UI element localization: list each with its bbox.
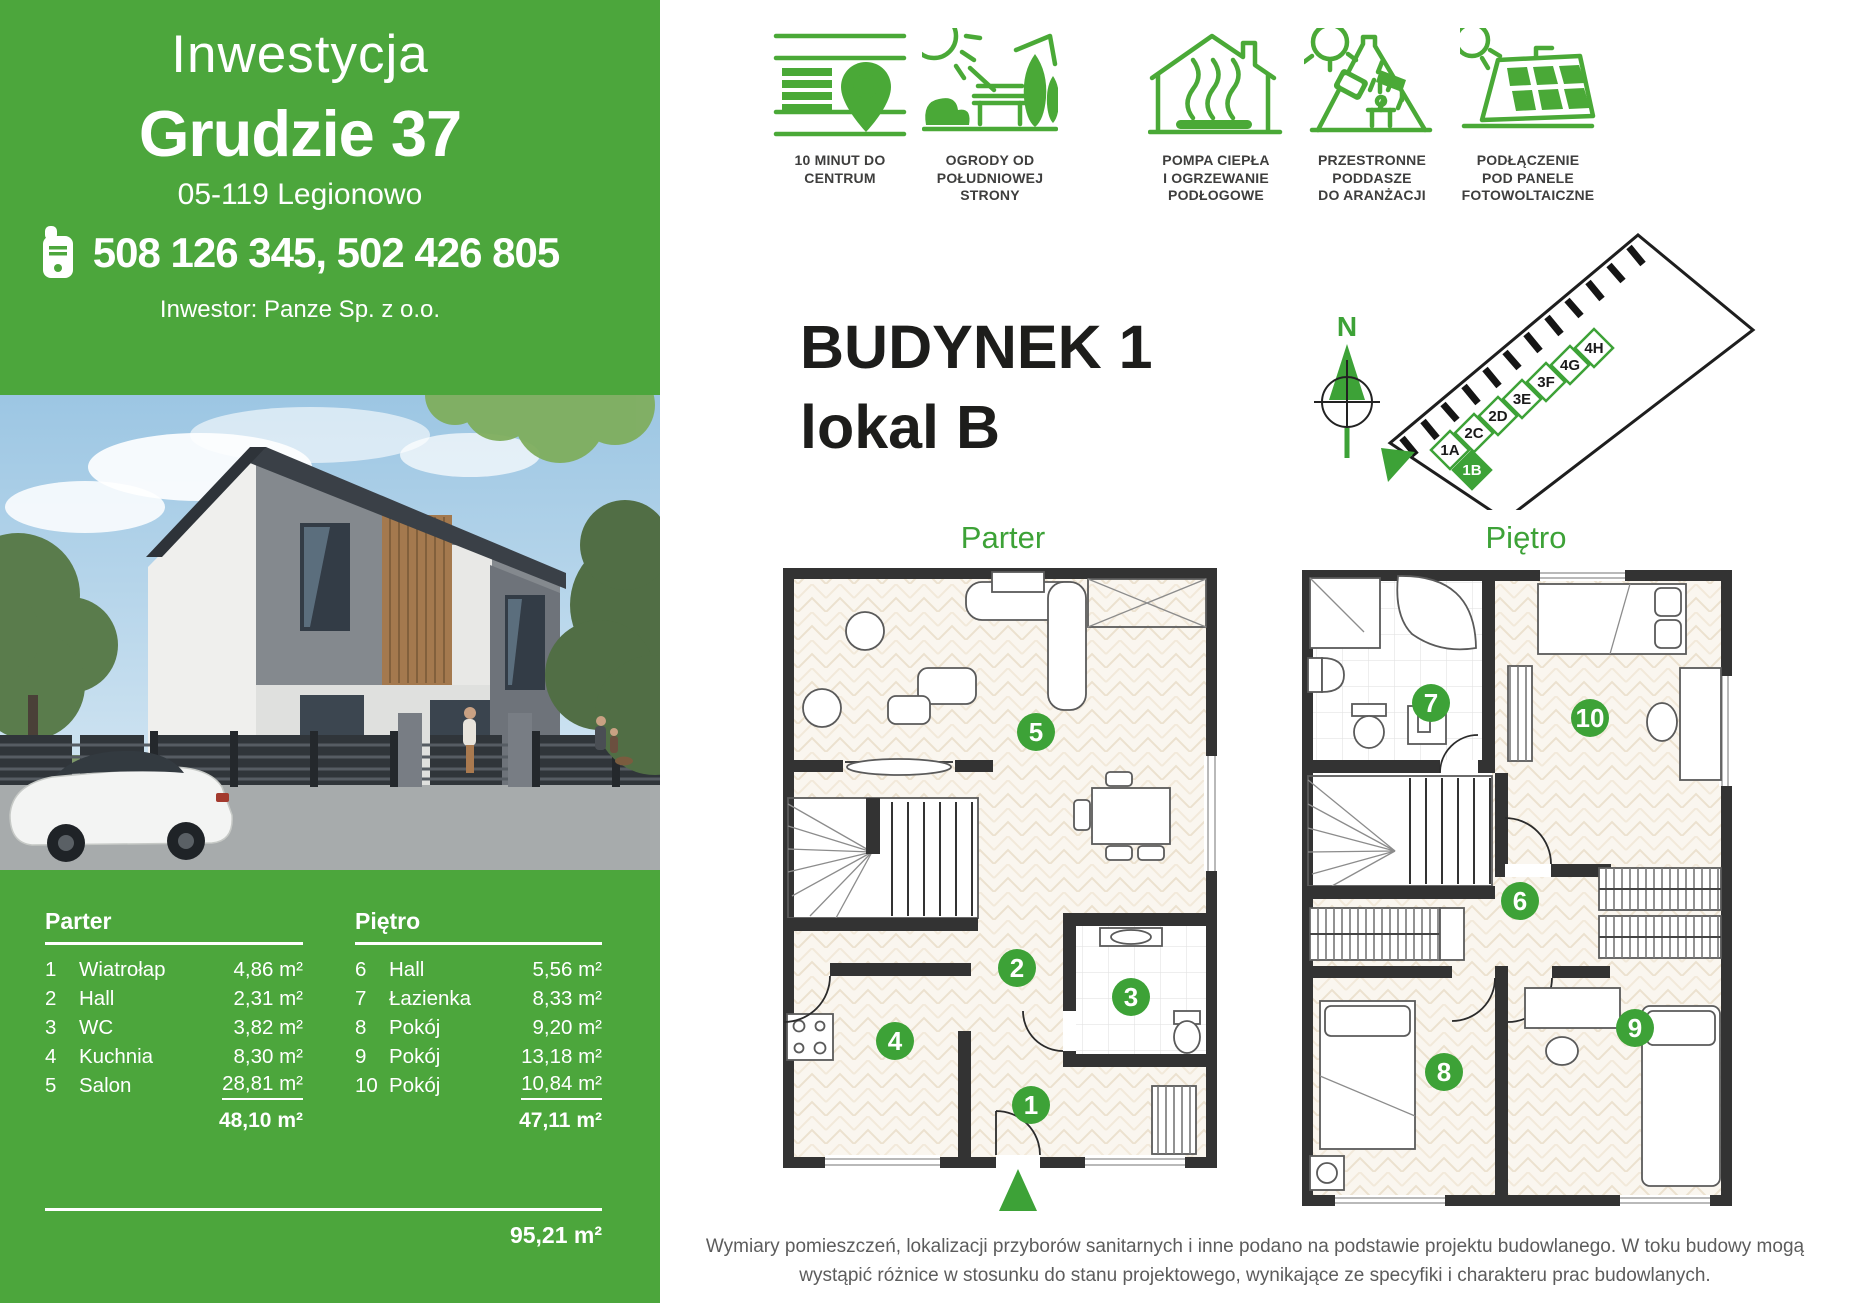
closet <box>1152 1086 1196 1154</box>
table-header-pietro: Piętro <box>355 908 602 935</box>
room-marker: 3 <box>1112 978 1150 1016</box>
table-header-parter: Parter <box>45 908 303 935</box>
wardrobe <box>1310 908 1464 960</box>
grand-total: 95,21 m² <box>302 1222 602 1249</box>
disclaimer: Wymiary pomieszczeń, lokalizacji przybor… <box>665 1232 1845 1290</box>
feature-label: PRZESTRONNE PODDASZE DO ARANŻACJI <box>1284 152 1460 205</box>
investor: Inwestor: Panze Sp. z o.o. <box>0 296 600 324</box>
svg-text:4: 4 <box>888 1026 903 1056</box>
room-no: 1 <box>45 958 79 982</box>
site-plan: 1A 2C 2D 3E 3F 4G <box>1360 210 1820 510</box>
floor-total: 47,11 m² <box>355 1109 602 1133</box>
table-row: 4 Kuchnia 8,30 m² <box>45 1042 303 1071</box>
house-render-illustration <box>0 395 660 870</box>
feature-label: PODŁĄCZENIE POD PANELE FOTOWOLTAICZNE <box>1440 152 1616 205</box>
floor-plan-parter: 5 2 3 4 1 <box>770 556 1230 1221</box>
table-row: 9 Pokój 13,18 m² <box>355 1042 602 1071</box>
address: 05-119 Legionowo <box>0 178 600 212</box>
svg-text:3F: 3F <box>1537 374 1555 391</box>
building-title: BUDYNEK 1 <box>800 312 1153 382</box>
svg-text:4H: 4H <box>1584 340 1603 357</box>
room-no: 4 <box>45 1045 79 1069</box>
room-area: 13,18 m² <box>521 1045 602 1069</box>
room-name: Hall <box>79 987 234 1011</box>
svg-text:2D: 2D <box>1488 408 1507 425</box>
svg-text:3: 3 <box>1124 982 1138 1012</box>
svg-text:9: 9 <box>1628 1013 1642 1043</box>
room-name: Wiatrołap <box>79 958 234 982</box>
compass-north-label: N <box>1337 311 1357 342</box>
room-name: Pokój <box>389 1045 521 1069</box>
floor-total: 48,10 m² <box>45 1109 303 1133</box>
svg-text:1: 1 <box>1024 1090 1038 1120</box>
svg-text:5: 5 <box>1029 717 1043 747</box>
unit-title: lokal B <box>800 392 1000 462</box>
svg-text:10: 10 <box>1576 703 1605 733</box>
room-area: 10,84 m² <box>521 1072 602 1100</box>
feature-gardens: OGRODY OD POŁUDNIOWEJ STRONY <box>902 28 1078 205</box>
room-marker: 2 <box>998 949 1036 987</box>
room-area: 28,81 m² <box>222 1072 303 1100</box>
feature-heat-pump: POMPA CIEPŁA I OGRZEWANIE PODŁOGOWE <box>1128 28 1304 205</box>
room-area: 4,86 m² <box>234 958 304 982</box>
room-area: 2,31 m² <box>234 987 304 1011</box>
entrance-triangle <box>999 1169 1037 1211</box>
phone-numbers: 508 126 345, 502 426 805 <box>93 229 559 277</box>
room-marker: 10 <box>1571 699 1609 737</box>
room-no: 5 <box>45 1074 79 1098</box>
table-row: 1 Wiatrołap 4,86 m² <box>45 955 303 984</box>
svg-text:6: 6 <box>1513 886 1527 916</box>
heat-pump-icon <box>1148 28 1284 140</box>
feature-solar: PODŁĄCZENIE POD PANELE FOTOWOLTAICZNE <box>1440 28 1616 205</box>
room-area: 3,82 m² <box>234 1016 304 1040</box>
room-marker: 1 <box>1012 1086 1050 1124</box>
site-marker-triangle <box>1381 448 1415 482</box>
divider <box>355 942 602 945</box>
svg-text:2: 2 <box>1010 953 1024 983</box>
map-pin-icon <box>772 28 908 140</box>
table-row: 2 Hall 2,31 m² <box>45 984 303 1013</box>
floor-plan-pietro: 7 10 6 8 9 <box>1290 556 1750 1236</box>
room-marker: 8 <box>1425 1053 1463 1091</box>
room-no: 8 <box>355 1016 389 1040</box>
phone-row: 508 126 345, 502 426 805 <box>0 226 600 280</box>
floor-label-parter: Parter <box>903 520 1103 556</box>
svg-text:1A: 1A <box>1440 442 1459 459</box>
room-no: 3 <box>45 1016 79 1040</box>
svg-text:2C: 2C <box>1464 425 1483 442</box>
feature-attic: PRZESTRONNE PODDASZE DO ARANŻACJI <box>1284 28 1460 205</box>
svg-text:7: 7 <box>1424 688 1438 718</box>
room-area: 8,33 m² <box>533 987 603 1011</box>
room-marker: 4 <box>876 1022 914 1060</box>
room-no: 6 <box>355 958 389 982</box>
room-area: 8,30 m² <box>234 1045 304 1069</box>
table-row: 6 Hall 5,56 m² <box>355 955 602 984</box>
solar-panel-icon <box>1460 28 1596 140</box>
room-marker: 5 <box>1017 713 1055 751</box>
room-name: Salon <box>79 1074 222 1098</box>
room-no: 2 <box>45 987 79 1011</box>
investment-title-bold: Grudzie 37 <box>0 96 600 171</box>
attic-icon <box>1304 28 1440 140</box>
disclaimer-line2: wystąpić różnice w stosunku do stanu pro… <box>665 1261 1845 1290</box>
room-name: Pokój <box>389 1016 533 1040</box>
room-area: 9,20 m² <box>533 1016 603 1040</box>
room-no: 9 <box>355 1045 389 1069</box>
table-row: 8 Pokój 9,20 m² <box>355 1013 602 1042</box>
table-row: 3 WC 3,82 m² <box>45 1013 303 1042</box>
svg-text:8: 8 <box>1437 1057 1451 1087</box>
svg-text:3E: 3E <box>1513 391 1531 408</box>
feature-label: OGRODY OD POŁUDNIOWEJ STRONY <box>902 152 1078 205</box>
table-row: 10 Pokój 10,84 m² <box>355 1071 602 1100</box>
svg-text:4G: 4G <box>1560 357 1580 374</box>
room-no: 10 <box>355 1074 389 1098</box>
flyer-page: Inwestycja Grudzie 37 05-119 Legionowo 5… <box>0 0 1850 1303</box>
area-table-pietro: Piętro 6 Hall 5,56 m² 7 Łazienka 8,33 m²… <box>355 908 602 1133</box>
table-row: 5 Salon 28,81 m² <box>45 1071 303 1100</box>
room-marker: 6 <box>1501 882 1539 920</box>
floor-label-pietro: Piętro <box>1426 520 1626 556</box>
investment-title-light: Inwestycja <box>0 24 600 85</box>
grand-total-divider <box>45 1208 602 1211</box>
svg-text:1B: 1B <box>1462 462 1481 479</box>
room-name: Kuchnia <box>79 1045 234 1069</box>
room-name: Hall <box>389 958 533 982</box>
room-name: Pokój <box>389 1074 521 1098</box>
phone-icon <box>41 226 77 280</box>
room-marker: 9 <box>1616 1009 1654 1047</box>
sidebar-header: Inwestycja Grudzie 37 05-119 Legionowo 5… <box>0 0 660 395</box>
house-render-photo <box>0 395 660 870</box>
garden-icon <box>922 28 1058 140</box>
room-name: Łazienka <box>389 987 533 1011</box>
area-table-parter: Parter 1 Wiatrołap 4,86 m² 2 Hall 2,31 m… <box>45 908 303 1133</box>
room-name: WC <box>79 1016 234 1040</box>
area-table-panel: Parter 1 Wiatrołap 4,86 m² 2 Hall 2,31 m… <box>0 870 660 1303</box>
room-area: 5,56 m² <box>533 958 603 982</box>
divider <box>45 942 303 945</box>
disclaimer-line1: Wymiary pomieszczeń, lokalizacji przybor… <box>665 1232 1845 1261</box>
room-marker: 7 <box>1412 684 1450 722</box>
feature-label: POMPA CIEPŁA I OGRZEWANIE PODŁOGOWE <box>1128 152 1304 205</box>
table-row: 7 Łazienka 8,33 m² <box>355 984 602 1013</box>
console-table <box>845 759 953 775</box>
room-no: 7 <box>355 987 389 1011</box>
